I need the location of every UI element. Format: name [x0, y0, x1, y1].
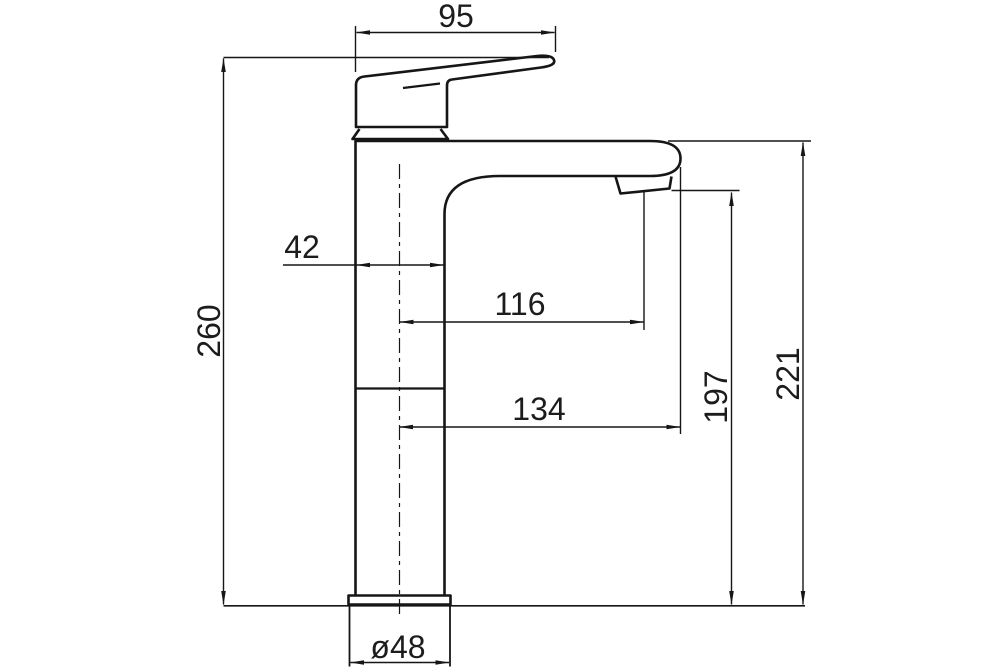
aerator-outlet — [616, 177, 672, 194]
dimension-value: 260 — [191, 304, 227, 357]
drawing-canvas: 95 260 42 116 134 19 — [0, 0, 1000, 667]
dimension-value: 95 — [438, 0, 474, 34]
handle-base-flange — [353, 129, 449, 139]
dim-base-diameter: ø48 — [350, 605, 451, 667]
dim-spout-height: 221 — [668, 141, 811, 605]
dimension-value: 221 — [770, 347, 806, 400]
dimension-value: 116 — [494, 286, 545, 322]
handle-grip-line — [403, 84, 440, 89]
spout-body-outline — [356, 141, 681, 595]
dimension-value: 197 — [698, 370, 734, 423]
faucet-outline — [224, 56, 806, 619]
dim-handle-length: 95 — [356, 0, 556, 72]
faucet-technical-drawing: 95 260 42 116 134 19 — [0, 0, 1000, 667]
dim-body-width: 42 — [283, 229, 444, 265]
handle-outline — [356, 56, 554, 127]
dimension-value: 42 — [284, 229, 320, 265]
dim-aerator-height: 197 — [672, 191, 740, 605]
dim-aerator-reach: 116 — [400, 192, 644, 330]
dimension-value: ø48 — [370, 629, 425, 665]
dimension-value: 134 — [512, 391, 565, 427]
dimensions: 95 260 42 116 134 19 — [191, 0, 811, 667]
